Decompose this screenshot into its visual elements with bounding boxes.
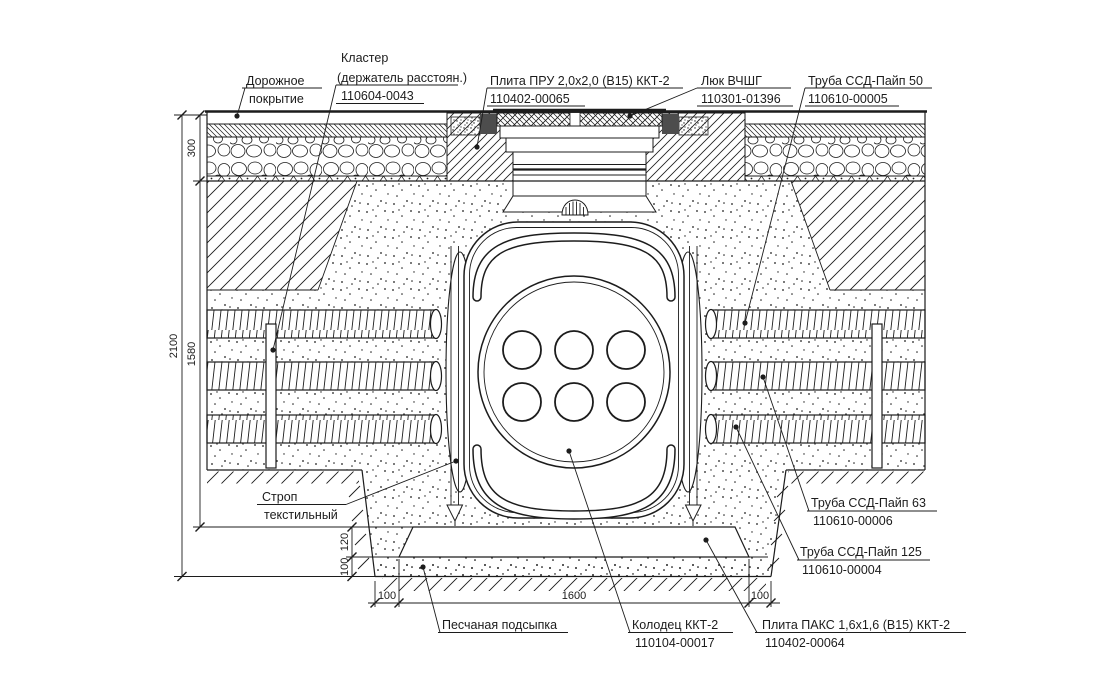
pipe-ssd-63-right	[706, 362, 926, 391]
dim-100-vert: 100	[339, 558, 351, 576]
neck-upper	[506, 138, 653, 152]
ground-hatch-right	[788, 472, 925, 484]
dim-1600: 1600	[562, 590, 586, 602]
dim-1580: 1580	[186, 342, 198, 366]
label-strop-2: текстильный	[264, 508, 338, 522]
label-cluster-code: 110604-0043	[341, 89, 414, 103]
label-plate-pru-code: 110402-00065	[490, 92, 570, 106]
frame-right	[662, 114, 679, 134]
label-road-surface-2: покрытие	[249, 92, 304, 106]
label-sand-bedding: Песчаная подсыпка	[442, 618, 557, 632]
cluster-rod-right	[872, 324, 882, 468]
label-cluster-2: (держатель расстоян.)	[337, 71, 467, 85]
label-pipe-125: Труба ССД-Пайп 125	[800, 545, 922, 559]
pipe-ssd-50-left	[207, 310, 442, 339]
pipe-ssd-125-left	[207, 415, 442, 444]
neck-riser	[513, 152, 646, 196]
frame-left	[480, 114, 497, 134]
sand-bedding-layer	[375, 557, 771, 577]
dim-2100: 2100	[168, 334, 180, 358]
cover-frame-ring	[500, 126, 659, 138]
label-well: Колодец ККТ-2	[632, 618, 718, 632]
label-pipe-50-code: 110610-00005	[808, 92, 888, 106]
drawing-canvas: 2100 300 1580 120 100 100	[0, 0, 1096, 700]
label-pipe-63-code: 110610-00006	[813, 514, 893, 528]
dim-120: 120	[339, 533, 351, 551]
label-plate-paks-code: 110402-00064	[765, 636, 845, 650]
label-plate-paks: Плита ПАКС 1,6x1,6 (В15) ККТ-2	[762, 618, 950, 632]
road-layers-right	[745, 124, 925, 181]
label-strop-1: Строп	[262, 490, 297, 504]
label-lyuk: Люк ВЧШГ	[701, 74, 762, 88]
dim-100-right: 100	[751, 590, 769, 602]
mortar-block-right	[679, 117, 708, 135]
label-pipe-125-code: 110610-00004	[802, 563, 882, 577]
tank-face-circle	[478, 276, 670, 468]
technical-drawing: 2100 300 1580 120 100 100	[0, 0, 1096, 700]
pipe-ssd-63-left	[207, 362, 442, 391]
label-well-code: 110104-00017	[635, 636, 715, 650]
label-plate-pru: Плита ПРУ 2,0x2,0 (В15) ККТ-2	[490, 74, 670, 88]
pipe-ssd-125-right	[706, 415, 926, 444]
road-layers-left	[207, 124, 447, 181]
label-road-surface-1: Дорожное	[246, 74, 305, 88]
label-pipe-63: Труба ССД-Пайп 63	[811, 496, 926, 510]
dim-300: 300	[186, 139, 198, 157]
well-tank	[446, 200, 702, 526]
label-lyuk-code: 110301-01396	[701, 92, 781, 106]
pipe-ssd-50-right	[706, 310, 926, 339]
ground-hatch-left	[207, 472, 359, 484]
mortar-block-left	[451, 117, 480, 135]
label-cluster-1: Кластер	[341, 51, 388, 65]
dim-100-left: 100	[378, 590, 396, 602]
label-pipe-50: Труба ССД-Пайп 50	[808, 74, 923, 88]
plate-paks-slab	[399, 527, 749, 557]
